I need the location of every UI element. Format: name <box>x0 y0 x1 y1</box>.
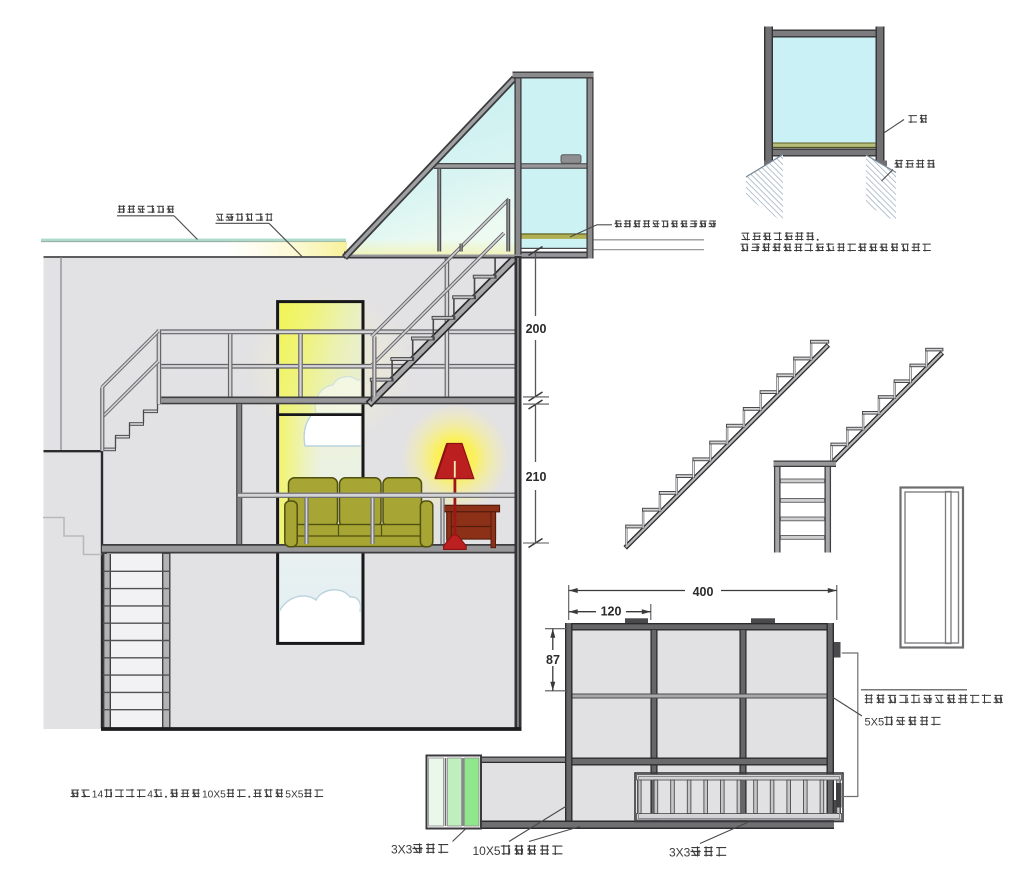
svg-text:5X5: 5X5 <box>285 790 303 801</box>
svg-text:14: 14 <box>92 790 104 801</box>
svg-text:4: 4 <box>147 790 153 801</box>
svg-text:200: 200 <box>526 322 547 336</box>
svg-text:10X5: 10X5 <box>473 844 501 858</box>
svg-text:400: 400 <box>693 585 714 599</box>
svg-text:210: 210 <box>526 470 547 484</box>
svg-text:87: 87 <box>546 653 560 667</box>
svg-text:3X3: 3X3 <box>669 846 691 860</box>
svg-text:120: 120 <box>601 605 622 619</box>
svg-text:3X3: 3X3 <box>391 843 413 857</box>
svg-text:10X5: 10X5 <box>202 790 226 801</box>
svg-text:5X5: 5X5 <box>865 717 885 729</box>
